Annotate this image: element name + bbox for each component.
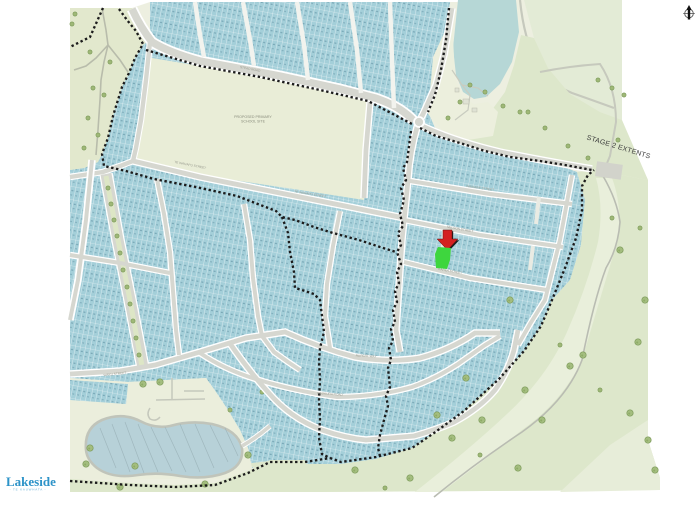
svg-text:PROPOSED PRIMARY: PROPOSED PRIMARY bbox=[234, 115, 272, 119]
svg-text:Lakeside: Lakeside bbox=[6, 474, 56, 489]
svg-text:- TE KAUWHATA -: - TE KAUWHATA - bbox=[10, 488, 47, 492]
svg-text:SCHOOL SITE: SCHOOL SITE bbox=[241, 120, 266, 124]
